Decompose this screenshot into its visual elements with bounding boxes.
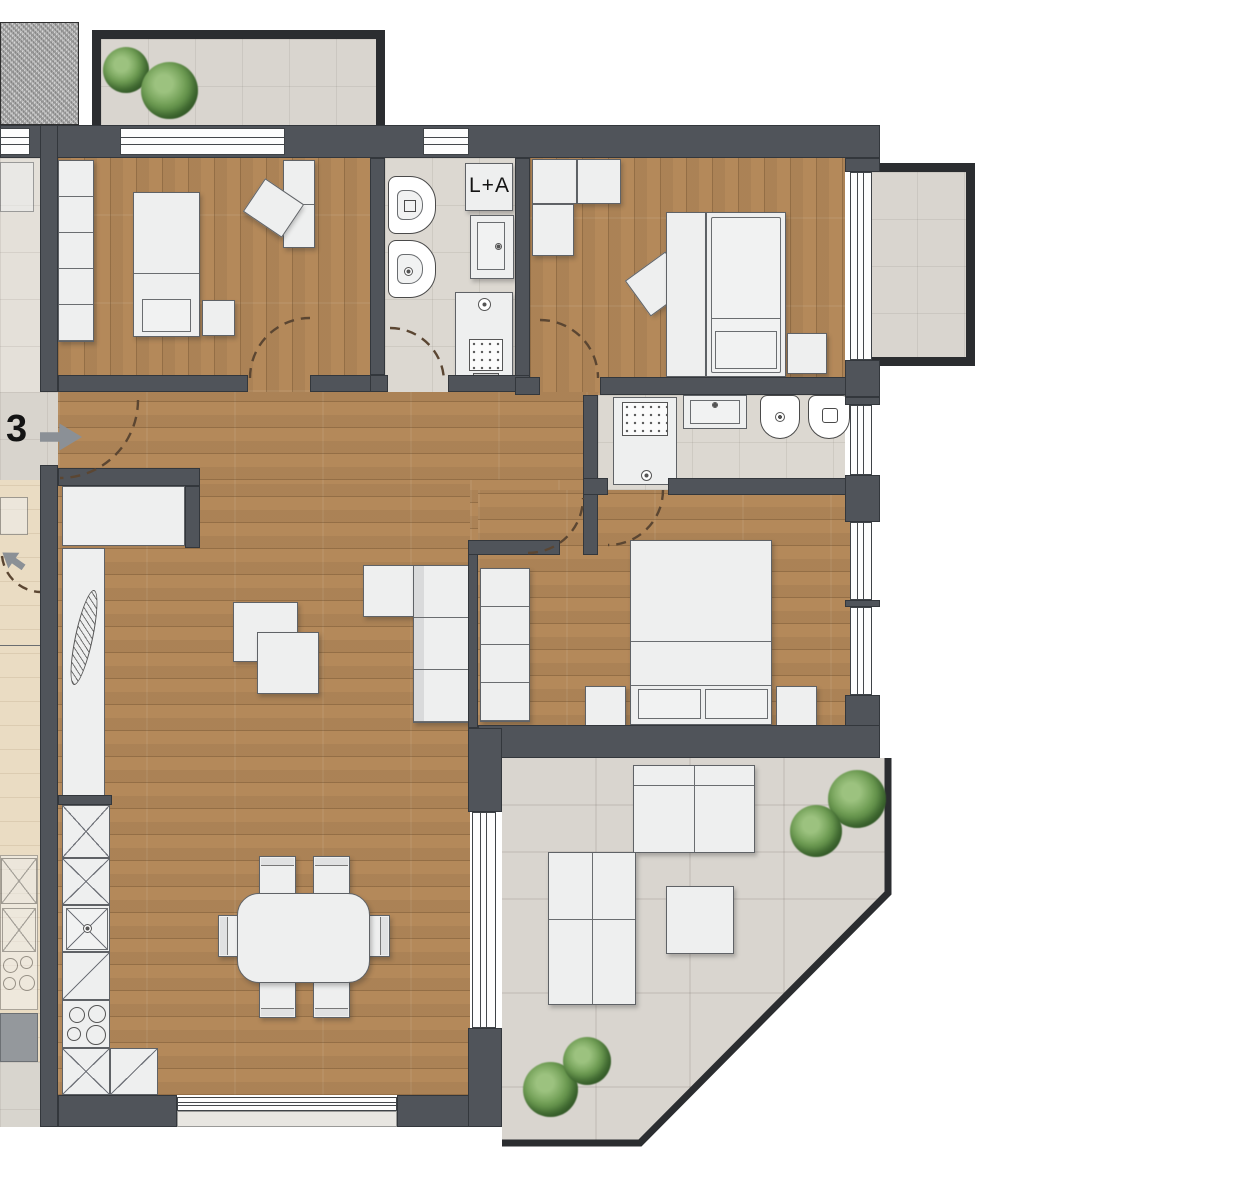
door-arc-bathroom2	[608, 490, 663, 545]
plant	[141, 62, 198, 119]
door-arc-bedroom3	[528, 498, 583, 553]
terrace-side-table	[666, 886, 734, 954]
unit-number-label: 3	[6, 408, 27, 451]
door-arc-bedroom2	[540, 320, 598, 378]
door-arc-bedroom1	[250, 318, 310, 378]
terrace-double-lounger	[633, 765, 755, 853]
floor-plan: L+A	[0, 0, 1240, 1179]
terrace-double-lounger	[548, 852, 636, 1005]
door-arc-laundry	[390, 328, 444, 382]
plant	[790, 805, 842, 857]
plant	[563, 1037, 611, 1085]
